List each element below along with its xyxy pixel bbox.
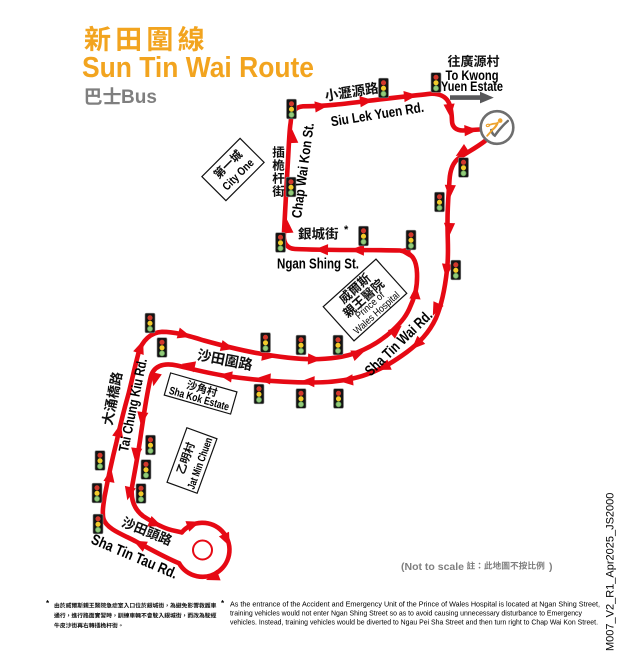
- svg-text:Ngan Shing St.: Ngan Shing St.: [277, 256, 359, 273]
- svg-text:Yuen Estate: Yuen Estate: [441, 79, 503, 94]
- svg-text:*: *: [344, 224, 349, 236]
- svg-text:(Not to scale: (Not to scale: [401, 561, 464, 573]
- svg-text:Sun Tin Wai Route: Sun Tin Wai Route: [82, 52, 314, 84]
- svg-text:): ): [549, 561, 553, 573]
- svg-text:training vehicles would not en: training vehicles would not enter Ngan S…: [230, 609, 582, 618]
- svg-text:M007_V2_R1_Apr2025_JS2000: M007_V2_R1_Apr2025_JS2000: [605, 493, 617, 651]
- svg-text:vehicles. Instead, training ve: vehicles. Instead, training vehicles wou…: [230, 618, 598, 627]
- svg-text:Bus: Bus: [121, 87, 157, 108]
- svg-text:As the entrance of the Acciden: As the entrance of the Accident and Emer…: [230, 600, 600, 609]
